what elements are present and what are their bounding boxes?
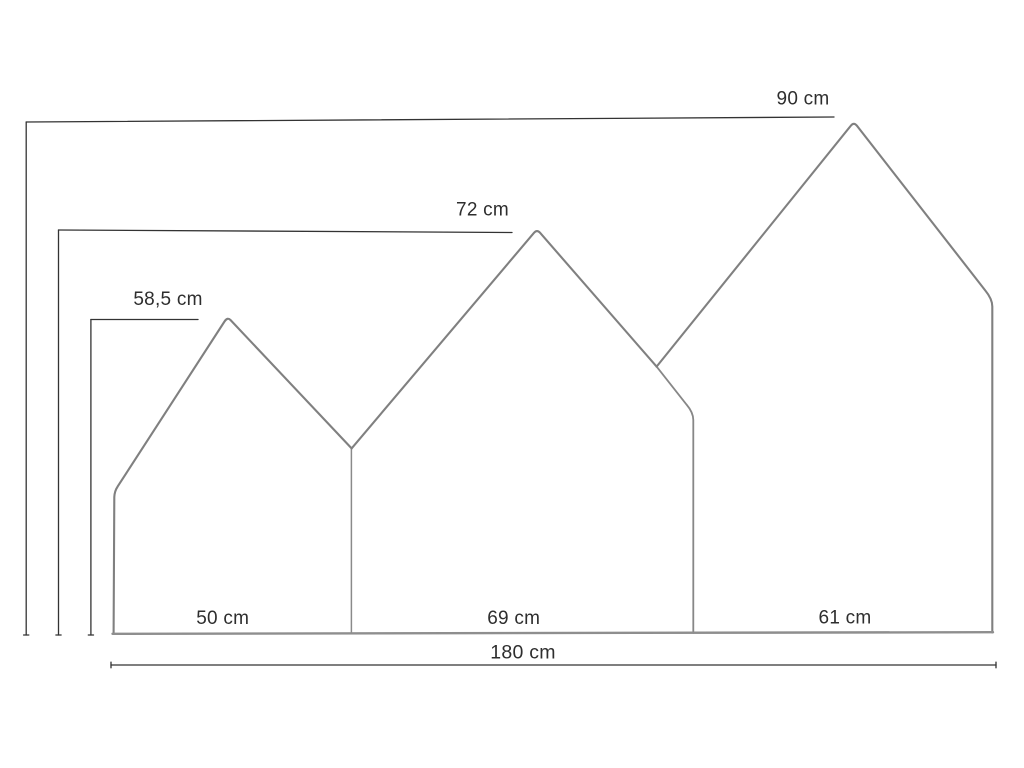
svg-text:61 cm: 61 cm	[819, 608, 872, 629]
svg-text:180 cm: 180 cm	[490, 642, 555, 664]
svg-text:58,5 cm: 58,5 cm	[133, 289, 202, 310]
svg-text:69 cm: 69 cm	[487, 608, 540, 629]
svg-text:90 cm: 90 cm	[777, 89, 830, 110]
svg-text:50 cm: 50 cm	[196, 608, 249, 629]
svg-text:72 cm: 72 cm	[456, 200, 509, 221]
